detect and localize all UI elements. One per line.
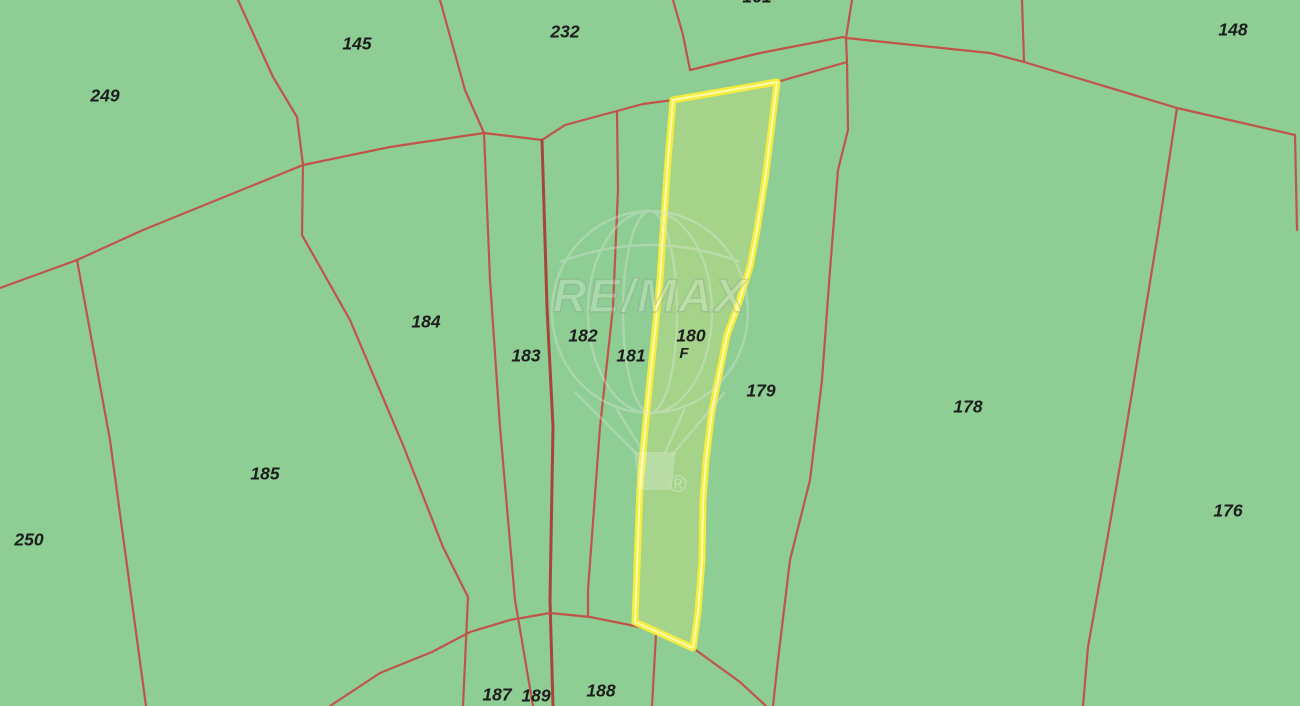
parcel-label-179: 179	[746, 381, 775, 401]
parcel-label-185: 185	[250, 464, 279, 484]
parcel-label-178: 178	[953, 397, 982, 417]
parcel-label-145: 145	[342, 34, 371, 54]
cadastral-map[interactable]: RE/MAX ® 1612491452321481841831821811791…	[0, 0, 1300, 706]
parcel-label-189: 189	[521, 686, 550, 706]
cadastral-map-stage[interactable]: RE/MAX ® 1612491452321481841831821811791…	[0, 0, 1300, 706]
parcel-label-148: 148	[1218, 20, 1247, 40]
parcel-sublabel-180: F	[679, 345, 689, 362]
parcel-label-181: 181	[616, 346, 645, 366]
parcel-label-161: 161	[742, 0, 771, 7]
parcel-label-180: 180	[676, 326, 705, 346]
parcel-label-184: 184	[411, 312, 440, 332]
parcel-label-182: 182	[568, 326, 597, 346]
registered-trademark-icon: ®	[669, 471, 687, 498]
parcel-label-188: 188	[586, 681, 615, 701]
parcel-label-249: 249	[89, 86, 119, 106]
parcel-label-232: 232	[549, 22, 579, 42]
parcel-label-183: 183	[511, 346, 540, 366]
parcel-label-176: 176	[1213, 501, 1242, 521]
watermark-brand-text: RE/MAX	[553, 269, 748, 322]
parcel-label-187: 187	[482, 685, 512, 705]
parcel-label-250: 250	[13, 530, 43, 550]
